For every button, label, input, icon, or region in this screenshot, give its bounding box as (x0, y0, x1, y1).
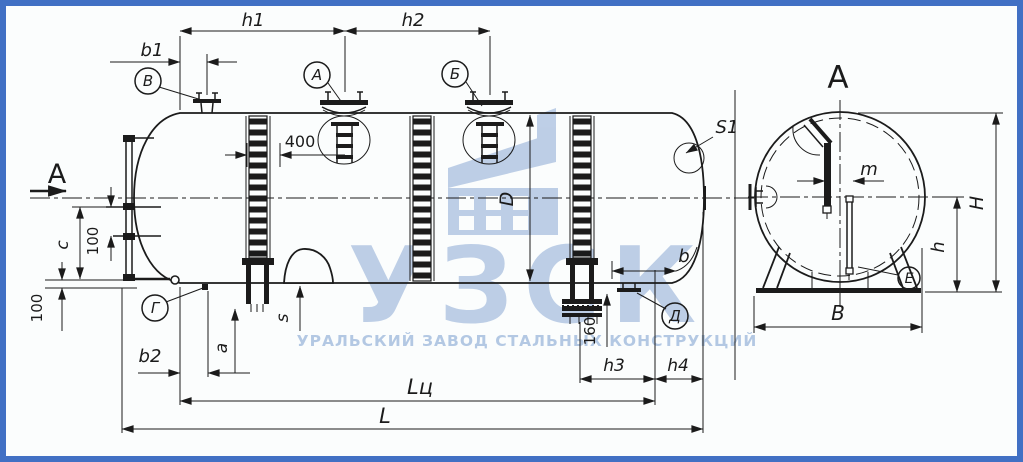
bottom-dome-fitting (284, 249, 333, 283)
nozzle-v (193, 93, 221, 113)
dim-s: s (273, 313, 293, 322)
dim-m: m (860, 159, 878, 180)
support-leg-left (242, 258, 274, 312)
section-arrow: А (30, 159, 67, 191)
dimension-400: 400 (225, 132, 345, 167)
dim-160: 160 (581, 317, 599, 346)
dim-400: 400 (285, 132, 316, 151)
callout-a: А (304, 62, 343, 104)
dip-tube-short (846, 196, 853, 280)
section-title: А (827, 60, 848, 96)
svg-text:Г: Г (151, 299, 161, 317)
dim-c: c (53, 240, 73, 250)
dimensions-left: c 100 100 (28, 187, 137, 331)
dim-100-gauge: 100 (84, 227, 102, 256)
svg-text:В: В (143, 72, 153, 90)
ladder-left (246, 116, 270, 258)
dim-b2: b2 (139, 346, 162, 367)
dim-h1: h1 (242, 10, 265, 31)
dim-100-ground: 100 (28, 294, 46, 323)
watermark-tagline: УРАЛЬСКИЙ ЗАВОД СТАЛЬНЫХ КОНСТРУКЦИЙ (297, 331, 758, 350)
tank-drawing: УЗСК УРАЛЬСКИЙ ЗАВОД СТАЛЬНЫХ КОНСТРУКЦИ… (0, 0, 1023, 462)
section-view: А (748, 60, 1003, 333)
svg-text:А: А (311, 66, 322, 84)
svg-text:Д: Д (668, 307, 681, 325)
nozzle-g (202, 284, 208, 290)
dim-h4: h4 (667, 356, 689, 376)
manhole-a (318, 92, 370, 164)
callout-b: Б (442, 61, 482, 106)
svg-text:Б: Б (450, 65, 460, 83)
dimensions-section: В H h (754, 113, 1003, 333)
dim-lc: Lц (407, 375, 433, 399)
ladder-right (570, 116, 594, 258)
technical-drawing-sheet: УЗСК УРАЛЬСКИЙ ЗАВОД СТАЛЬНЫХ КОНСТРУКЦИ… (0, 0, 1023, 462)
dim-l: L (379, 404, 391, 428)
dim-height: H (966, 196, 988, 210)
svg-text:Е: Е (905, 271, 914, 287)
dim-s1: S1 (716, 117, 739, 138)
dim-h3: h3 (603, 356, 625, 376)
s1-callout: S1 (674, 117, 738, 173)
saddle-support (756, 247, 921, 293)
dim-base-width: В (831, 301, 845, 325)
section-arrow-label: А (48, 159, 67, 190)
callout-v: В (135, 68, 205, 101)
dim-a: a (212, 343, 232, 353)
dim-diameter: D (496, 192, 518, 207)
factory-icon (448, 108, 558, 235)
dim-b: b (678, 246, 689, 267)
dimensions-top: h1 h2 b1 (110, 10, 490, 110)
dim-h-small: h (928, 241, 949, 252)
ladder-middle (410, 116, 434, 281)
level-gauge (106, 135, 179, 284)
watermark-logo: УЗСК (348, 225, 706, 347)
main-view: h1 h2 b1 400 А c 100 (28, 10, 758, 433)
dim-h2: h2 (402, 10, 425, 31)
dim-b1: b1 (141, 40, 164, 61)
callout-g: Г (142, 288, 203, 321)
